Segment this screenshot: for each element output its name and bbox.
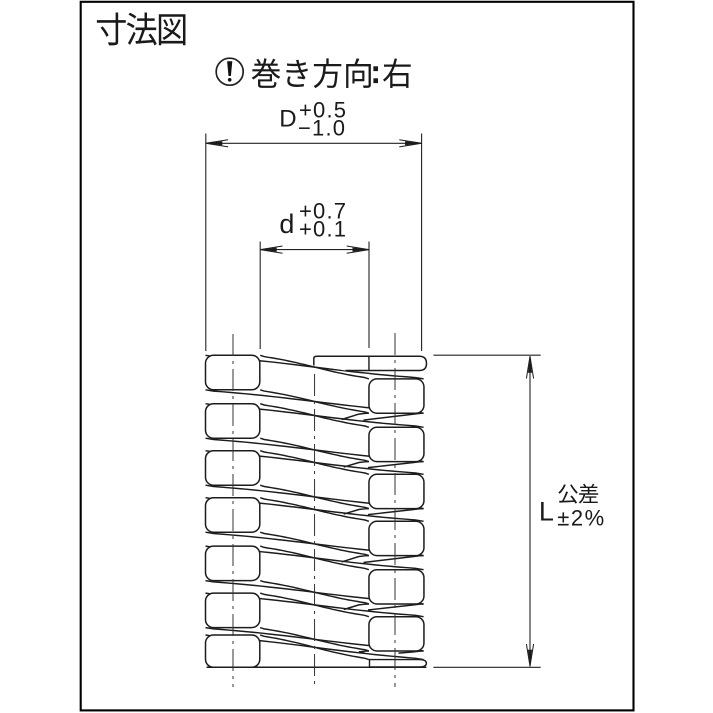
svg-text:d: d [279,209,294,239]
svg-text:−1.0: −1.0 [298,115,346,140]
svg-text:±2%: ±2% [557,505,605,530]
svg-text:+0.1: +0.1 [299,217,347,242]
svg-text:D: D [279,105,296,132]
svg-text:L: L [539,497,554,527]
